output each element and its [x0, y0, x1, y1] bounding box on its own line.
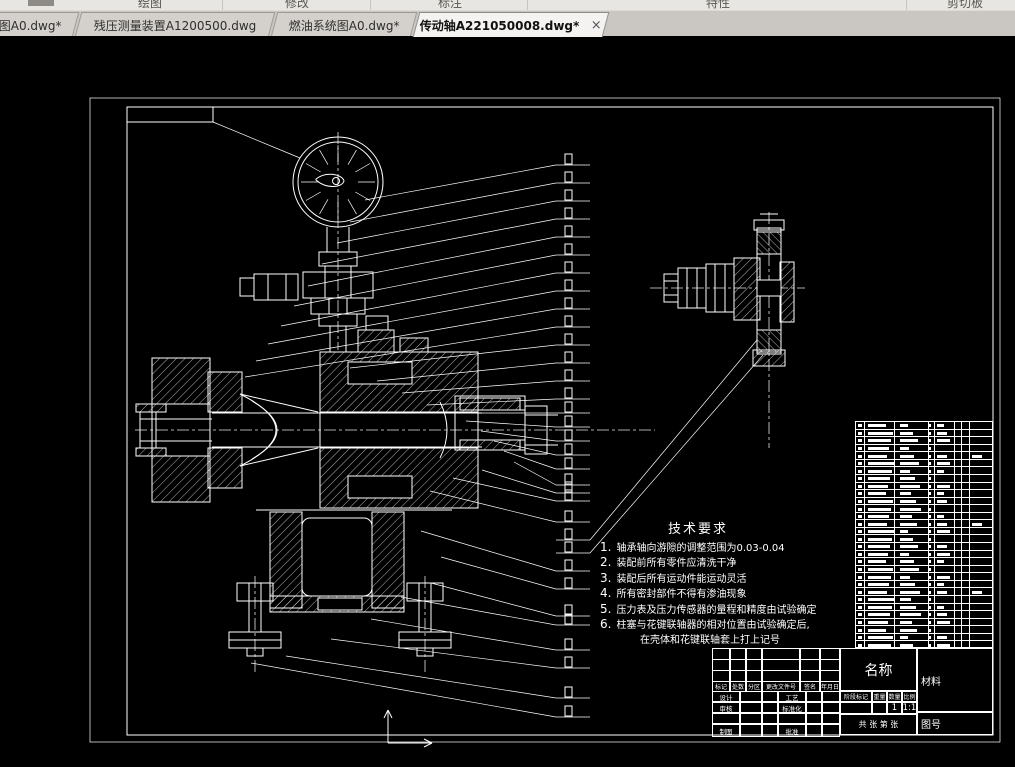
bom-entry-bar [900, 591, 920, 594]
bom-entry-bar [900, 477, 915, 480]
bom-row [856, 467, 992, 475]
bom-entry-bar [868, 629, 886, 632]
bom-entry-bar [900, 560, 914, 563]
bom-entry-bar [900, 439, 918, 442]
bom-entry-bar [900, 523, 917, 526]
drawing-canvas[interactable]: 技术要求 1.轴承轴向游隙的调整范围为0.03-0.042.装配前所有零件应清洗… [0, 36, 1015, 767]
bom-entry-bar [937, 432, 947, 435]
bom-entry-bar [937, 492, 944, 495]
signature-cell [806, 702, 822, 713]
bom-entry-bar [858, 523, 862, 526]
bom-row [856, 604, 992, 612]
bom-entry-bar [937, 583, 944, 586]
bom-entry-bar [929, 606, 931, 609]
part-balloon [565, 370, 572, 380]
bom-row [856, 505, 992, 513]
bom-entry-bar [868, 591, 887, 594]
bom-entry-bar [900, 606, 916, 609]
bom-entry-bar [858, 477, 862, 480]
signature-cell [806, 713, 822, 724]
bom-entry-bar [858, 644, 862, 647]
bom-entry-bar [900, 455, 914, 458]
bom-row [856, 460, 992, 468]
bom-entry-bar [929, 576, 931, 579]
bom-entry-bar [900, 613, 921, 616]
bom-entry-bar [929, 455, 931, 458]
stage-value-cell: 1:1 [902, 702, 917, 714]
bom-row [856, 483, 992, 491]
bom-entry-bar [858, 560, 862, 563]
leader-line [331, 639, 556, 668]
bom-entry-bar [868, 621, 888, 624]
leader-line [466, 421, 556, 427]
part-balloon [565, 657, 572, 667]
bom-entry-bar [929, 447, 931, 450]
frame-marker-box [127, 107, 213, 122]
part-balloon [565, 542, 572, 552]
pressure-gauge [293, 137, 383, 272]
bom-entry-bar [900, 553, 909, 556]
bom-entry-bar [937, 591, 947, 594]
bom-entry-bar [929, 432, 931, 435]
tech-requirement-item: 5.压力表及压力传感器的量程和精度由试验确定 [600, 601, 816, 616]
signature-cell [740, 713, 762, 724]
sheet-count-cell: 共 张 第 张 [840, 714, 917, 735]
bom-entry-bar [937, 455, 947, 458]
bom-entry-bar [929, 621, 931, 624]
part-balloon [565, 416, 572, 426]
bom-entry-bar [868, 477, 890, 480]
bom-entry-bar [929, 629, 931, 632]
bom-entry-bar [937, 470, 944, 473]
bom-entry-bar [858, 591, 862, 594]
bom-entry-bar [868, 439, 891, 442]
bom-entry-bar [900, 644, 913, 647]
signature-cell [740, 691, 762, 702]
bom-entry-bar [868, 500, 893, 503]
bom-row [856, 422, 992, 430]
signature-cell [740, 724, 762, 737]
bom-entry-bar [858, 613, 862, 616]
bom-row [856, 626, 992, 634]
part-balloon [565, 280, 572, 290]
bom-entry-bar [858, 455, 862, 458]
leader-line [350, 183, 556, 222]
signature-cell [806, 691, 822, 702]
tech-requirement-item: 3.装配后所有运动件能运动灵活 [600, 570, 746, 585]
stage-value-cell [840, 702, 872, 714]
bom-entry-bar [858, 583, 862, 586]
bom-entry-bar [972, 455, 982, 458]
stage-header-cell: 阶段标记 [840, 691, 872, 702]
bom-entry-bar [858, 492, 862, 495]
bom-entry-bar [972, 523, 982, 526]
bom-row [856, 498, 992, 506]
bom-entry-bar [900, 432, 913, 435]
bom-entry-bar [868, 606, 892, 609]
bom-entry-bar [868, 636, 893, 639]
signature-cell [762, 702, 778, 713]
ribbon-group-label: 标注 [438, 0, 462, 10]
bom-entry-bar [929, 515, 931, 518]
bom-entry-bar [929, 636, 931, 639]
bom-row [856, 573, 992, 581]
bom-entry-bar [900, 636, 908, 639]
leader-line [281, 273, 556, 326]
bom-entry-bar [868, 576, 891, 579]
bom-entry-bar [868, 455, 887, 458]
bom-entry-bar [929, 500, 931, 503]
ribbon-strip: 绘图修改标注特性剪切板 [0, 0, 1015, 10]
bom-entry-bar [929, 568, 931, 571]
housing [229, 510, 452, 656]
bom-entry-bar [868, 485, 888, 488]
part-balloon [565, 511, 572, 521]
bom-entry-bar [858, 621, 862, 624]
bom-entry-bar [858, 576, 862, 579]
ribbon-separator [527, 0, 528, 10]
bom-entry-bar [937, 523, 947, 526]
bom-entry-bar [929, 545, 931, 548]
signature-cell [822, 691, 840, 702]
leader-line [308, 237, 556, 286]
part-balloon [565, 402, 572, 412]
bom-entry-bar [858, 530, 862, 533]
bom-row [856, 513, 992, 521]
bom-entry-bar [937, 576, 950, 579]
leader-line [401, 597, 556, 625]
bom-entry-bar [937, 439, 950, 442]
signature-cell [762, 691, 778, 702]
ribbon-group-label: 特性 [706, 0, 730, 10]
stage-header-cell: 重量 [872, 691, 887, 702]
part-balloon [565, 529, 572, 539]
bom-row [856, 475, 992, 483]
bom-entry-bar [937, 545, 947, 548]
signature-label-cell [778, 713, 806, 724]
bom-entry-bar [900, 447, 909, 450]
signature-label-cell: 标准化 [778, 702, 806, 713]
drawing-no-cell: 图号 [917, 712, 993, 735]
part-balloon [565, 262, 572, 272]
bom-entry-bar [868, 508, 891, 511]
bom-entry-bar [858, 545, 862, 548]
file-tab-label: 传动轴A221050008.dwg* [420, 17, 580, 34]
ucs-icon [384, 710, 432, 747]
bom-entry-bar [937, 606, 944, 609]
bom-row [856, 437, 992, 445]
bom-entry-bar [937, 500, 947, 503]
bom-entry-bar [937, 530, 950, 533]
bom-entry-bar [972, 591, 982, 594]
part-balloon [565, 639, 572, 649]
signature-cell [822, 724, 840, 737]
signature-cell [762, 713, 778, 724]
bom-entry-bar [937, 644, 950, 647]
bom-entry-bar [858, 515, 862, 518]
bom-entry-bar [937, 515, 944, 518]
stage-value-cell [872, 702, 887, 714]
signature-label-cell: 制图 [712, 724, 740, 737]
bom-entry-bar [929, 613, 931, 616]
bom-entry-bar [900, 598, 911, 601]
file-tab-4[interactable]: 传动轴A221050008.dwg*× [413, 12, 610, 37]
part-balloon [565, 172, 572, 182]
part-balloon [565, 458, 572, 468]
bom-row [856, 611, 992, 619]
leader-line [421, 531, 556, 571]
bom-entry-bar [858, 500, 862, 503]
bom-entry-bar [937, 621, 950, 624]
bom-row [856, 445, 992, 453]
bom-entry-bar [900, 583, 915, 586]
signature-label-cell: 工艺 [778, 691, 806, 702]
bom-row [856, 520, 992, 528]
bom-entry-bar [929, 485, 931, 488]
bom-entry-bar [858, 598, 862, 601]
bom-row [856, 619, 992, 627]
bom-entry-bar [900, 424, 908, 427]
bom-entry-bar [900, 530, 908, 533]
signature-cell [822, 713, 840, 724]
bom-row [856, 596, 992, 604]
ribbon-separator [370, 0, 371, 10]
bom-entry-bar [937, 462, 950, 465]
tech-requirement-item: 2.装配前所有零件应清洗干净 [600, 554, 736, 569]
bom-entry-bar [858, 439, 862, 442]
bom-entry-bar [900, 621, 912, 624]
bom-entry-bar [900, 500, 916, 503]
tech-requirement-item: 4.所有密封部件不得有渗油现象 [600, 585, 746, 600]
signature-label-cell: 设计 [712, 691, 740, 702]
bom-entry-bar [929, 598, 931, 601]
bom-entry-bar [900, 576, 910, 579]
file-tab-3[interactable]: 燃油系统图A0.dwg* [271, 12, 418, 37]
bom-entry-bar [868, 515, 889, 518]
part-balloon [565, 316, 572, 326]
leader-line [365, 165, 556, 200]
bom-entry-bar [900, 515, 912, 518]
leader-line [482, 470, 556, 493]
bom-entry-bar [868, 538, 892, 541]
application-window: 绘图修改标注特性剪切板 图A0.dwg*残压测量装置A1200500.dwg燃油… [0, 0, 1015, 767]
file-tab-2[interactable]: 残压测量装置A1200500.dwg [75, 12, 276, 37]
material-cell: 材料 [917, 648, 993, 712]
bom-entry-bar [858, 553, 862, 556]
bom-entry-bar [868, 568, 893, 571]
signature-label-cell: 审核 [712, 702, 740, 713]
part-balloon [565, 334, 572, 344]
bom-entry-bar [868, 644, 891, 647]
bom-entry-bar [929, 644, 931, 647]
bom-entry-bar [858, 629, 862, 632]
stage-value-cell: 1 [887, 702, 902, 714]
leader-line [590, 340, 757, 540]
bom-table [855, 421, 993, 648]
bom-row [856, 528, 992, 536]
bom-row [856, 430, 992, 438]
bom-entry-bar [900, 470, 910, 473]
part-balloon [565, 388, 572, 398]
bom-entry-bar [929, 424, 931, 427]
bom-row [856, 566, 992, 574]
signature-cell [762, 724, 778, 737]
signature-label-cell: 批准 [778, 724, 806, 737]
bom-entry-bar [858, 462, 862, 465]
part-balloon [565, 578, 572, 588]
bom-entry-bar [900, 462, 919, 465]
part-balloon [565, 244, 572, 254]
bom-entry-bar [929, 470, 931, 473]
bom-entry-bar [929, 523, 931, 526]
ribbon-separator [906, 0, 907, 10]
bom-entry-bar [929, 492, 931, 495]
bom-row [856, 634, 992, 642]
bom-entry-bar [858, 538, 862, 541]
bom-entry-bar [937, 560, 944, 563]
part-balloon [565, 560, 572, 570]
bom-entry-bar [937, 613, 947, 616]
signature-cell [740, 702, 762, 713]
bom-entry-bar [858, 432, 862, 435]
bom-entry-bar [929, 530, 931, 533]
bom-entry-bar [900, 508, 921, 511]
bom-entry-bar [858, 470, 862, 473]
bom-entry-bar [868, 560, 886, 563]
part-balloon [565, 444, 572, 454]
tab-close-icon[interactable]: × [591, 19, 602, 32]
bom-entry-bar [858, 485, 862, 488]
bom-entry-bar [868, 424, 886, 427]
bom-entry-bar [900, 545, 918, 548]
bom-entry-bar [937, 485, 950, 488]
part-balloon [565, 298, 572, 308]
bom-entry-bar [868, 545, 890, 548]
name-cell: 名称 [840, 648, 917, 691]
bom-entry-bar [868, 470, 892, 473]
bom-entry-bar [868, 492, 886, 495]
part-balloon [565, 687, 572, 697]
part-balloon [565, 352, 572, 362]
leader-line [213, 122, 300, 158]
leader-line [251, 663, 556, 717]
bom-entry-bar [858, 424, 862, 427]
bom-row [856, 558, 992, 566]
leader-line [322, 219, 556, 264]
ribbon-group-label: 绘图 [138, 0, 162, 10]
bom-entry-bar [868, 553, 888, 556]
bom-entry-bar [900, 485, 920, 488]
part-balloon [565, 706, 572, 716]
bom-entry-bar [900, 629, 917, 632]
bom-row [856, 551, 992, 559]
ribbon-overflow-button[interactable] [28, 0, 54, 6]
tech-requirement-item: 6.柱塞与花键联轴器的相对位置由试验确定后, [600, 616, 810, 631]
bom-entry-bar [929, 583, 931, 586]
bom-entry-bar [929, 508, 931, 511]
main-assembly [136, 316, 558, 508]
bom-entry-bar [868, 598, 894, 601]
part-balloon [565, 208, 572, 218]
bom-entry-bar [868, 583, 889, 586]
bom-entry-bar [929, 591, 931, 594]
bom-entry-bar [900, 538, 913, 541]
file-tab-1[interactable]: 图A0.dwg* [0, 12, 79, 37]
bom-entry-bar [900, 568, 919, 571]
tech-requirement-item: 1.轴承轴向游隙的调整范围为0.03-0.04 [600, 539, 785, 554]
bom-entry-bar [858, 508, 862, 511]
bom-entry-bar [937, 553, 950, 556]
bom-entry-bar [900, 492, 911, 495]
stage-header-cell: 比例 [902, 691, 917, 702]
bom-row [856, 543, 992, 551]
signature-cell [822, 702, 840, 713]
bom-entry-bar [868, 432, 893, 435]
bom-entry-bar [929, 477, 931, 480]
file-tab-bar: 图A0.dwg*残压测量装置A1200500.dwg燃油系统图A0.dwg*传动… [0, 10, 1015, 36]
bom-row [856, 588, 992, 596]
bom-entry-bar [929, 553, 931, 556]
ribbon-group-label: 剪切板 [947, 0, 983, 10]
bom-entry-bar [858, 447, 862, 450]
leader-line [441, 557, 556, 589]
stage-header-cell: 数量 [887, 691, 902, 702]
right-fitting [664, 214, 794, 366]
part-balloon [565, 190, 572, 200]
file-tab-label: 残压测量装置A1200500.dwg [94, 17, 257, 34]
bom-entry-bar [858, 568, 862, 571]
file-tab-label: 图A0.dwg* [0, 17, 61, 34]
bom-entry-bar [929, 560, 931, 563]
bom-entry-bar [868, 530, 894, 533]
signature-label-cell [712, 713, 740, 724]
part-balloon [565, 226, 572, 236]
bom-entry-bar [868, 462, 894, 465]
tech-requirements-title: 技术要求 [638, 518, 758, 537]
bom-entry-bar [929, 538, 931, 541]
bom-entry-bar [858, 636, 862, 639]
left-flange [152, 358, 210, 404]
leader-line [286, 656, 556, 698]
signature-cell [806, 724, 822, 737]
bom-entry-bar [929, 462, 931, 465]
tech-requirement-continuation: 在壳体和花键联轴套上打上记号 [640, 631, 780, 646]
leader-line [337, 201, 556, 243]
part-balloon [565, 430, 572, 440]
part-balloon [565, 154, 572, 164]
bom-entry-bar [868, 447, 889, 450]
bom-entry-bar [937, 636, 947, 639]
bom-entry-bar [929, 439, 931, 442]
ribbon-separator [222, 0, 223, 10]
bom-row [856, 490, 992, 498]
bom-row [856, 581, 992, 589]
bom-entry-bar [868, 613, 890, 616]
bom-entry-bar [858, 606, 862, 609]
bom-row [856, 536, 992, 544]
bom-entry-bar [868, 523, 887, 526]
leader-line [431, 583, 556, 616]
bom-row [856, 452, 992, 460]
bom-entry-bar [937, 424, 944, 427]
file-tab-label: 燃油系统图A0.dwg* [289, 17, 400, 34]
ribbon-group-label: 修改 [285, 0, 309, 10]
